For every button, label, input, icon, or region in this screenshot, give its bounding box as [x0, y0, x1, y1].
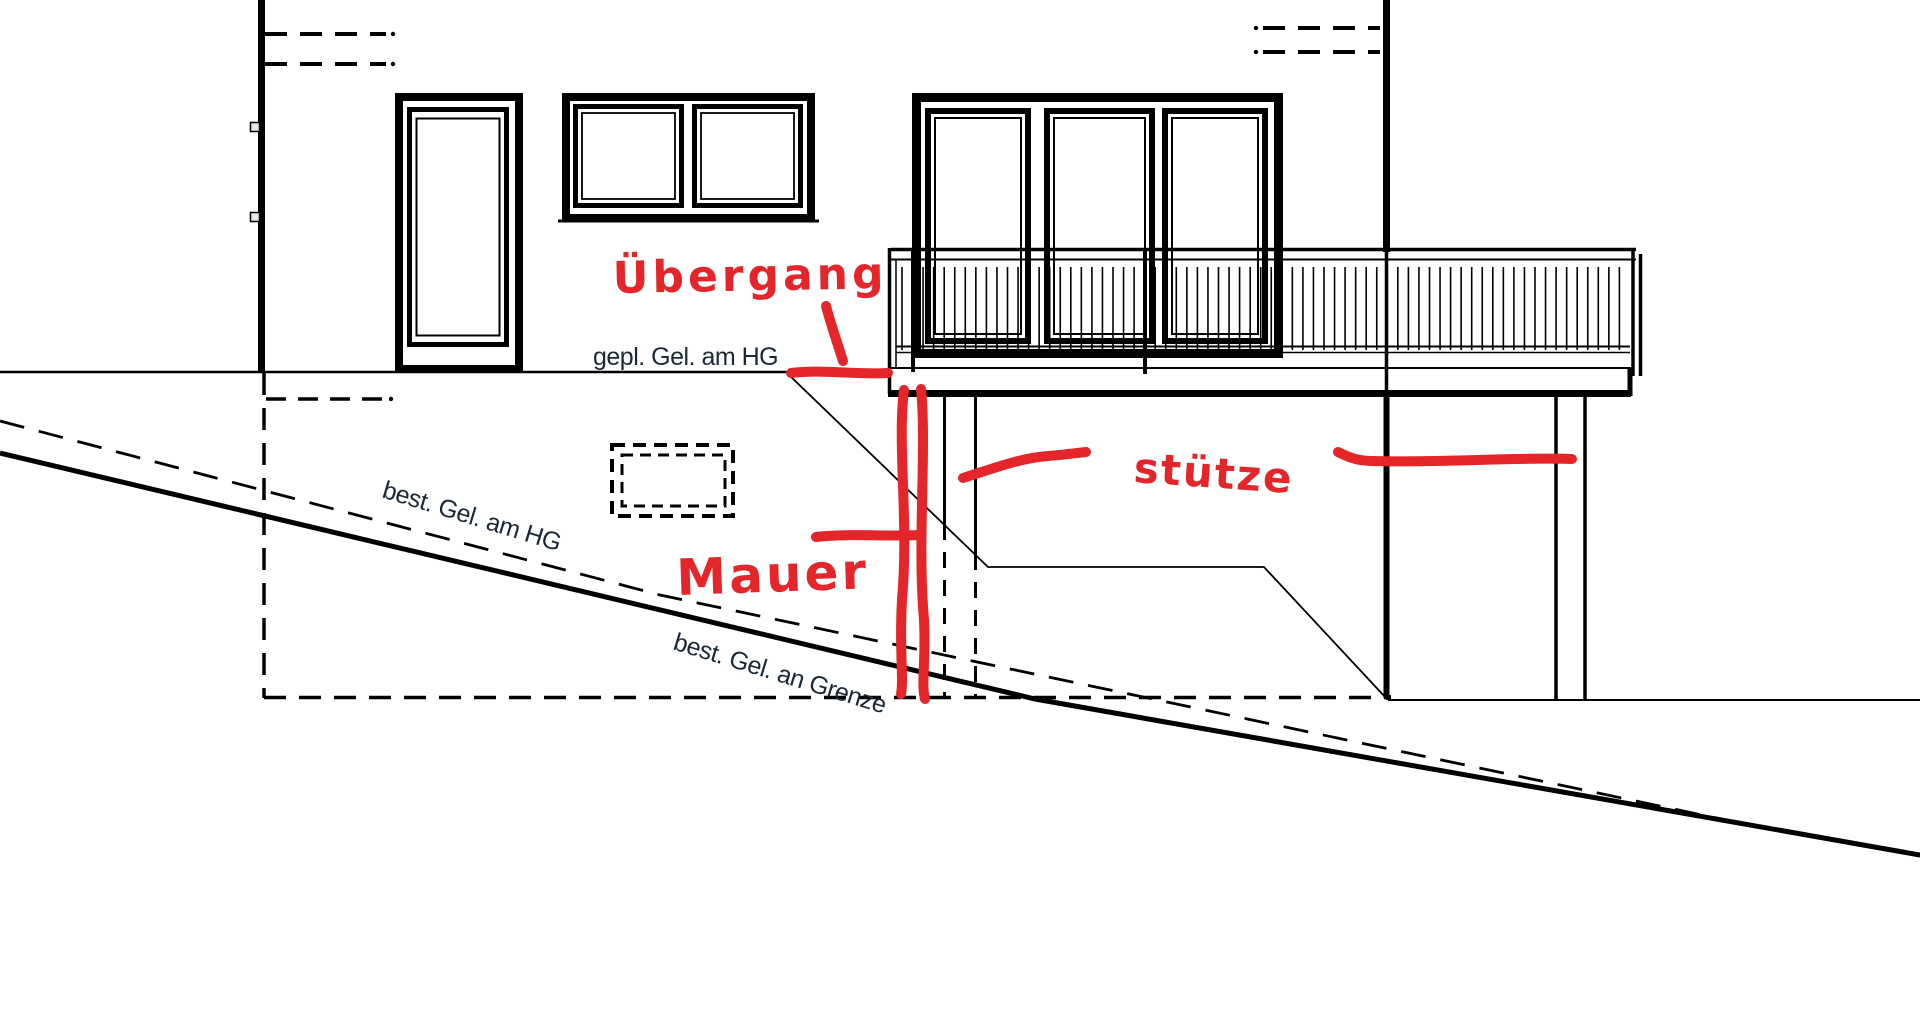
- window-pane-left: [576, 107, 682, 206]
- balcony-pane-2-inner: [1054, 118, 1145, 334]
- annotation-mauer: Mauer: [675, 542, 870, 607]
- balcony-slab: [888, 368, 1633, 396]
- elevation-drawing: gepl. Gel. am HG best. Gel. am HG best. …: [0, 0, 1920, 1017]
- stuetze-leader-right: [1338, 452, 1572, 461]
- balcony-doors: [917, 98, 1279, 354]
- section-cut-lines: [788, 374, 1920, 700]
- uebergang-level-stroke: [791, 372, 888, 374]
- railing-balusters: [902, 267, 1619, 350]
- wall-tick-upper: [251, 123, 260, 132]
- hidden-edges-top-left: [265, 34, 386, 64]
- mauer-wall-stroke-right: [921, 389, 925, 699]
- dash-end-dot: [391, 32, 395, 36]
- label-planned-grade: gepl. Gel. am HG: [593, 343, 778, 371]
- dash-end-dot: [1254, 26, 1258, 30]
- annotation-uebergang: Übergang: [612, 246, 888, 304]
- terrain-existing-dashed: [0, 421, 1920, 856]
- window-pane-right-inner: [701, 113, 794, 199]
- balcony-door-frame: [917, 98, 1279, 354]
- red-strokes: [791, 306, 1572, 699]
- wall-tick-lower: [251, 213, 260, 222]
- balcony-pane-3-inner: [1172, 118, 1258, 334]
- door-frame-inner: [417, 119, 500, 336]
- uebergang-leader-stroke: [826, 306, 843, 361]
- grade-labels: gepl. Gel. am HG best. Gel. am HG best. …: [379, 343, 889, 719]
- dash-end-dot: [389, 397, 393, 401]
- window-pane-right: [695, 107, 801, 206]
- hidden-edges-top-right: [1263, 28, 1380, 52]
- annotation-stuetze: stütze: [1132, 443, 1295, 503]
- mauer-wall-stroke-left: [901, 390, 904, 694]
- elevation-sheet: gepl. Gel. am HG best. Gel. am HG best. …: [0, 0, 1920, 1017]
- window-pane-left-inner: [582, 113, 675, 199]
- terrain: [0, 421, 1920, 856]
- balcony-pane-2: [1047, 111, 1152, 341]
- door: [399, 97, 519, 369]
- door-frame-mid: [410, 110, 507, 345]
- dash-end-dot: [391, 62, 395, 66]
- label-existing-grade-boundary: best. Gel. an Grenze: [670, 628, 889, 719]
- basement-window-inner: [622, 455, 725, 506]
- balcony-supports: [945, 397, 1586, 699]
- stuetze-leader-left: [963, 452, 1086, 478]
- balcony-pane-1: [928, 111, 1028, 341]
- window: [558, 97, 819, 221]
- dash-end-dot: [1254, 50, 1258, 54]
- terrain-existing-solid: [0, 453, 1920, 855]
